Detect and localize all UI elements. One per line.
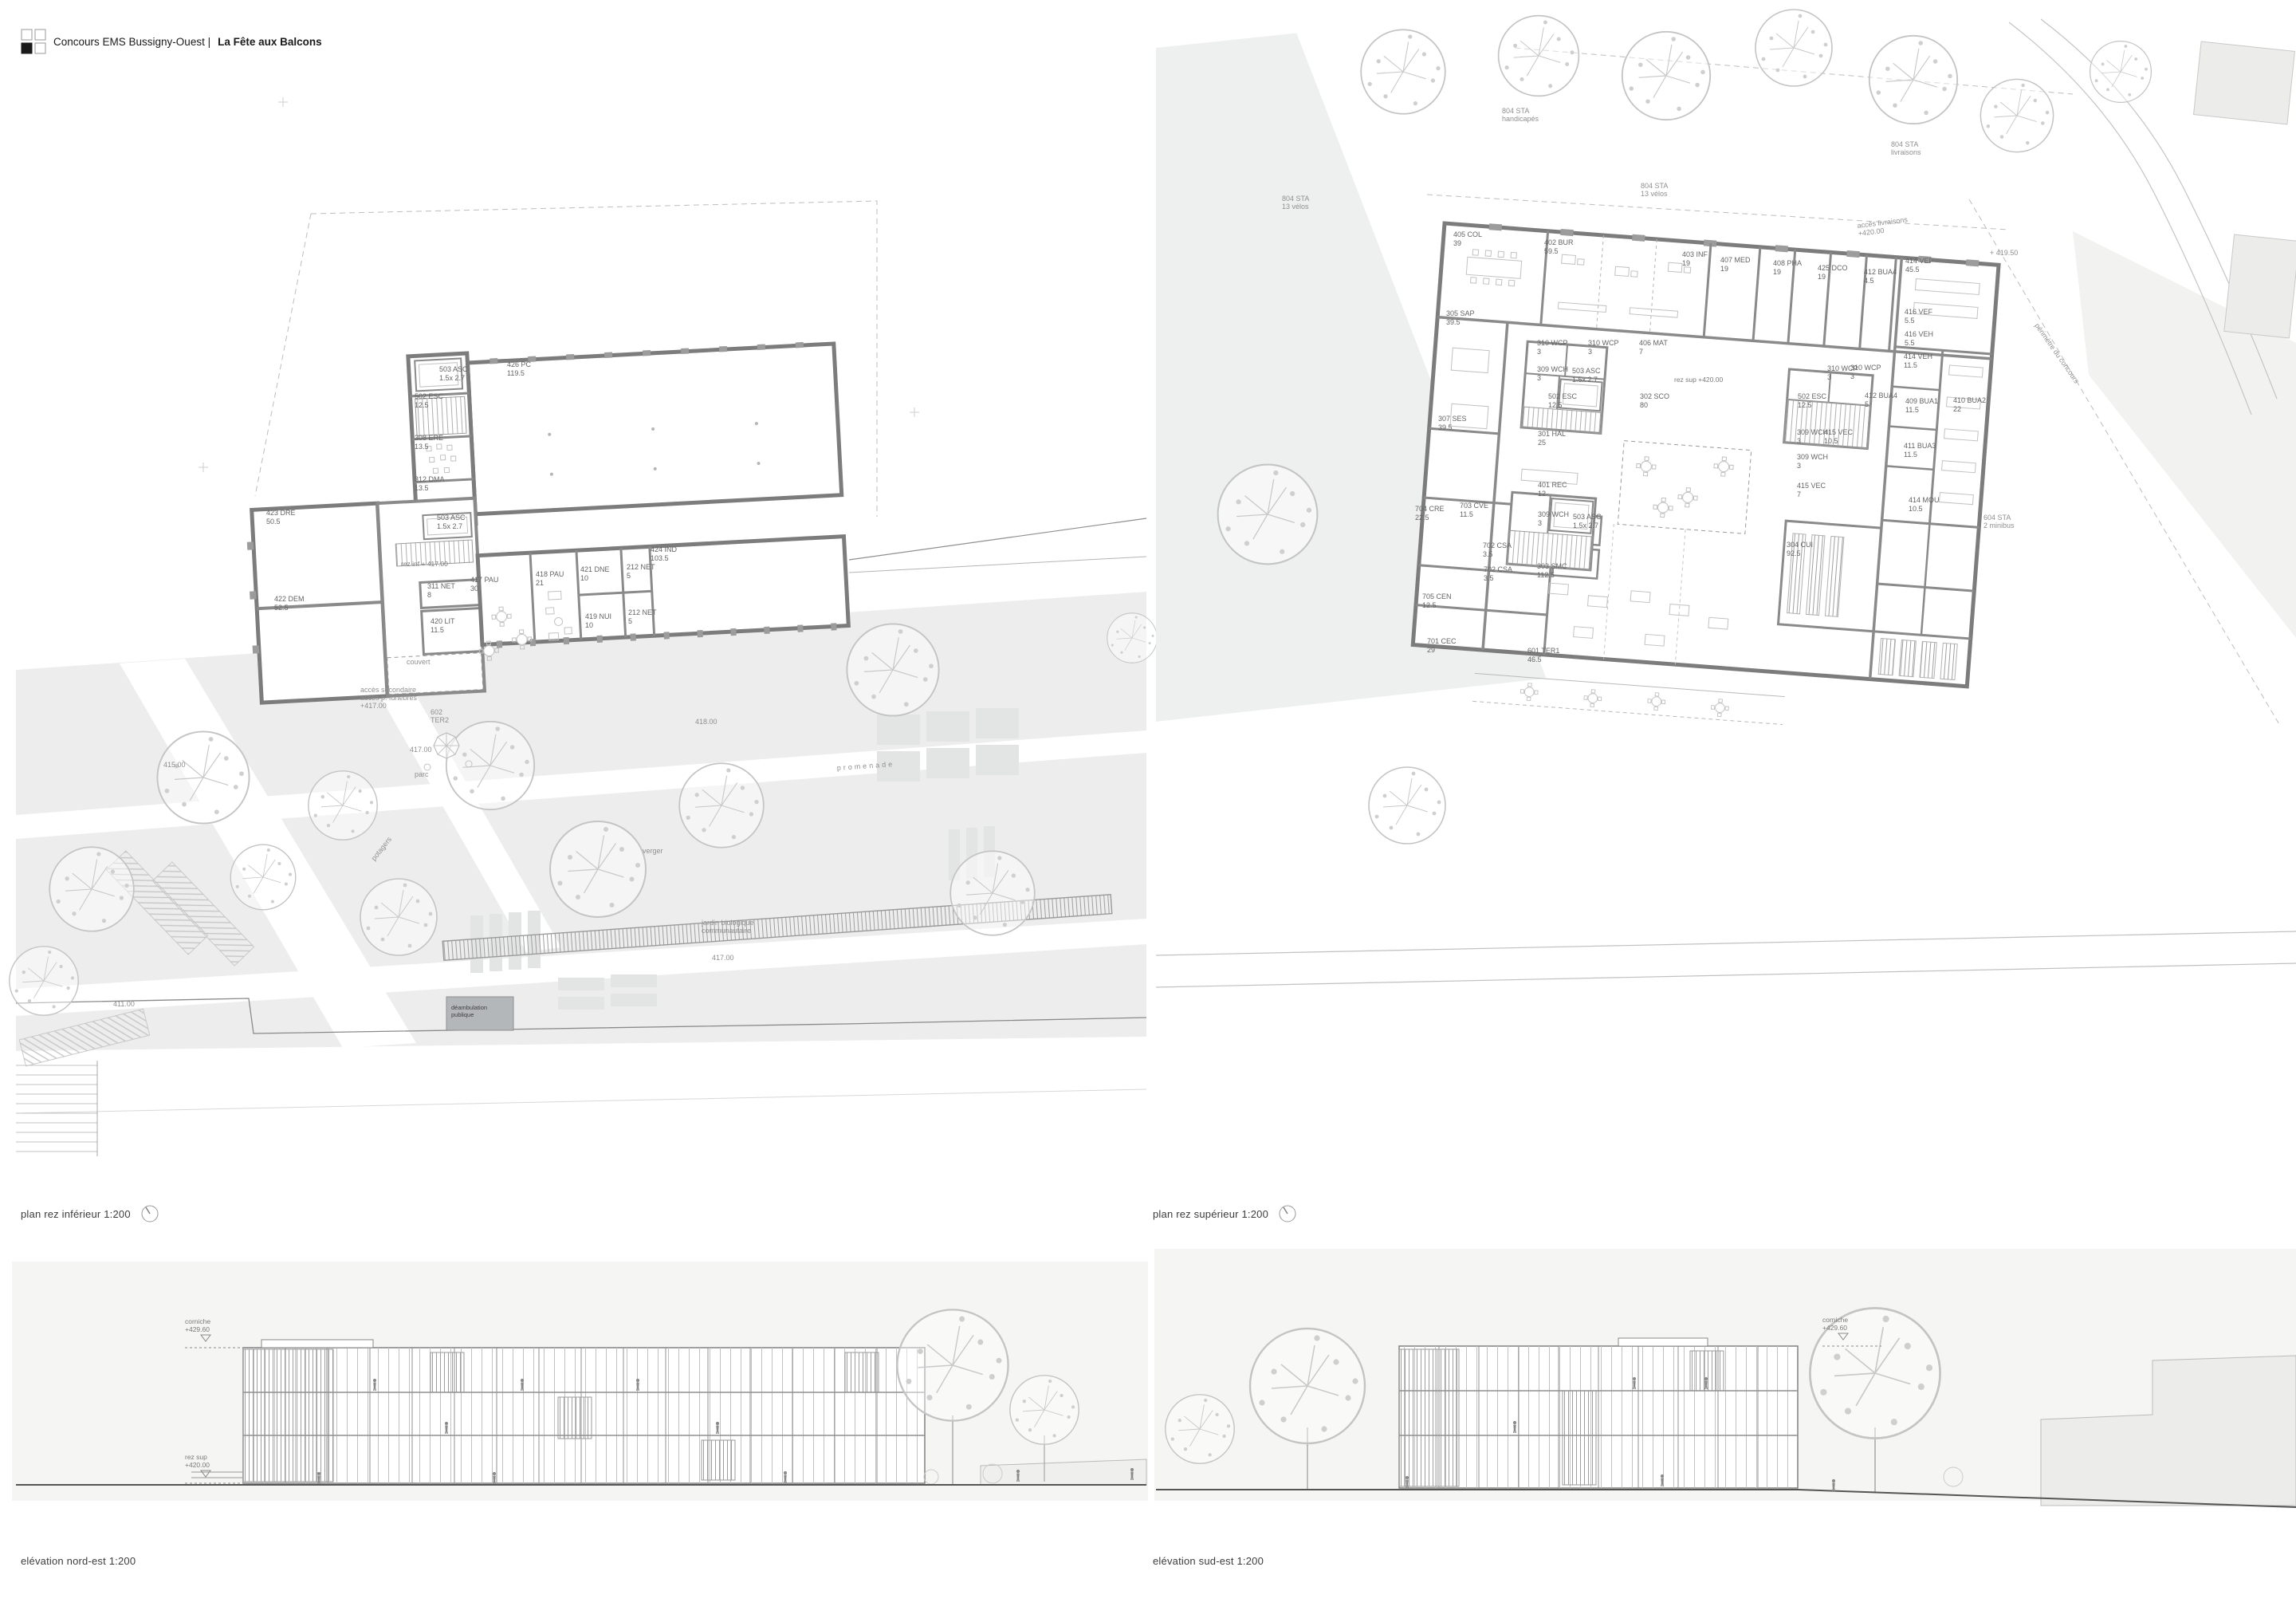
site-label: + 419.50	[1990, 249, 2018, 257]
level-annotation: rez sup+420.00	[185, 1453, 210, 1469]
site-label: 418.00	[695, 718, 717, 726]
room-label: 503 ASC1.5x 2.7	[1572, 367, 1601, 384]
caption-text: elévation sud-est 1:200	[1153, 1555, 1264, 1567]
caption-elevation-ne: elévation nord-est 1:200	[21, 1555, 136, 1567]
north-arrow-icon	[140, 1204, 159, 1223]
site-label: 804 STAhandicapés	[1502, 107, 1539, 123]
project-title: La Fête aux Balcons	[218, 36, 322, 48]
caption-plan-inferieur: plan rez inférieur 1:200	[21, 1204, 159, 1223]
room-label: 503 ASC1.5x 2.7	[437, 514, 466, 530]
competition-title: Concours EMS Bussigny-Ouest |	[53, 36, 210, 48]
annotations-elevation-se: corniche+429.60	[1822, 1316, 1848, 1332]
caption-text: elévation nord-est 1:200	[21, 1555, 136, 1567]
room-label: 503 ASC1.5x 2.7	[1573, 513, 1602, 530]
site-label: rez inf + 417.00	[401, 560, 448, 568]
competition-board-drawing: 503 ASC1.5x 2.7502 ESC12.5308 ERE13.5312…	[0, 0, 2296, 1622]
site-label: 417.00	[410, 746, 432, 754]
caption-elevation-se: elévation sud-est 1:200	[1153, 1555, 1264, 1567]
site-label: 604 STA2 minibus	[1983, 514, 2015, 530]
plan-superieur-drawing	[1156, 10, 2296, 987]
office-logo	[21, 29, 46, 54]
site-label: périmètre du concours	[2033, 321, 2081, 384]
site-label: 415.00	[163, 761, 186, 769]
room-label: 503 ASC1.5x 2.7	[439, 365, 468, 382]
site-label: parc	[415, 770, 429, 778]
site-label: 417.00	[712, 954, 734, 962]
site-label: 804 STA13 vélos	[1641, 182, 1668, 198]
site-label: accès livraisons+420.00	[1857, 215, 1909, 238]
site-label: 804 STAlivraisons	[1891, 140, 1921, 156]
level-annotation: corniche+429.60	[185, 1317, 210, 1333]
site-label: jardin biologiquecommunautaire	[701, 919, 754, 935]
caption-text: plan rez inférieur 1:200	[21, 1208, 131, 1220]
site-label: rez sup +420.00	[1674, 376, 1723, 384]
caption-text: plan rez supérieur 1:200	[1153, 1208, 1268, 1220]
site-label: verger	[643, 847, 663, 855]
north-arrow-icon	[1278, 1204, 1297, 1223]
site-label: 411.00	[113, 1000, 135, 1008]
level-annotation: corniche+429.60	[1822, 1316, 1848, 1332]
site-label: 804 STA13 vélos	[1282, 195, 1309, 211]
board-header: Concours EMS Bussigny-Ouest | La Fête au…	[21, 29, 322, 54]
site-label: couvert	[407, 658, 431, 666]
caption-plan-superieur: plan rez supérieur 1:200	[1153, 1204, 1297, 1223]
plan-inferieur-drawing	[10, 97, 1157, 1156]
